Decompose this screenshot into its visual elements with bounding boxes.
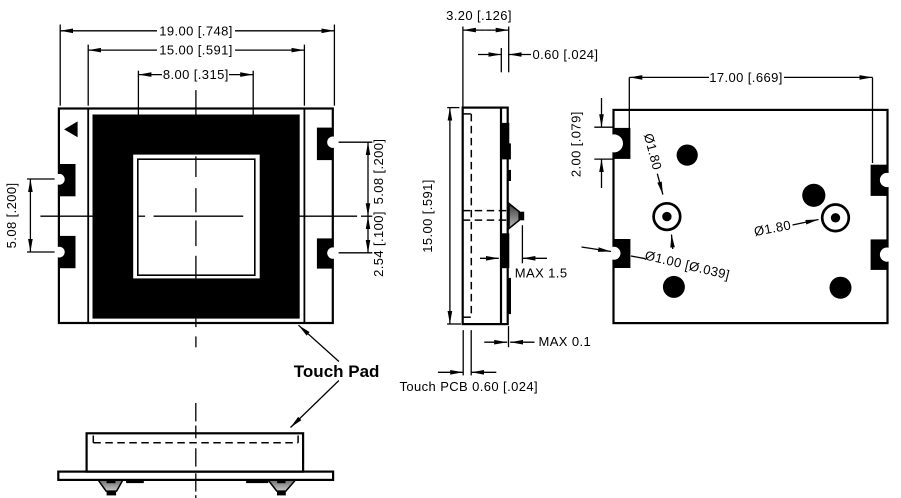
- svg-text:Ø1.80: Ø1.80: [753, 217, 793, 239]
- svg-text:MAX 1.5: MAX 1.5: [515, 266, 568, 281]
- svg-text:5.08 [.200]: 5.08 [.200]: [371, 139, 386, 205]
- svg-text:Touch PCB 0.60 [.024]: Touch PCB 0.60 [.024]: [400, 379, 538, 394]
- svg-text:8.00 [.315]: 8.00 [.315]: [163, 67, 229, 82]
- svg-text:3.20 [.126]: 3.20 [.126]: [446, 8, 512, 23]
- svg-text:Ø1.00 [Ø.039]: Ø1.00 [Ø.039]: [643, 248, 731, 283]
- svg-text:5.08 [.200]: 5.08 [.200]: [4, 182, 19, 248]
- svg-text:0.60 [.024]: 0.60 [.024]: [533, 47, 599, 62]
- svg-text:2.00 [.079]: 2.00 [.079]: [569, 111, 584, 177]
- svg-text:2.54 [.100]: 2.54 [.100]: [371, 211, 386, 277]
- svg-text:15.00 [.591]: 15.00 [.591]: [159, 43, 232, 58]
- svg-text:MAX 0.1: MAX 0.1: [539, 334, 592, 349]
- svg-text:Ø1.80: Ø1.80: [641, 132, 665, 172]
- svg-text:17.00 [.669]: 17.00 [.669]: [709, 70, 782, 85]
- svg-text:15.00 [.591]: 15.00 [.591]: [420, 179, 435, 252]
- svg-text:19.00 [.748]: 19.00 [.748]: [159, 23, 232, 38]
- svg-text:Touch Pad: Touch Pad: [294, 362, 380, 381]
